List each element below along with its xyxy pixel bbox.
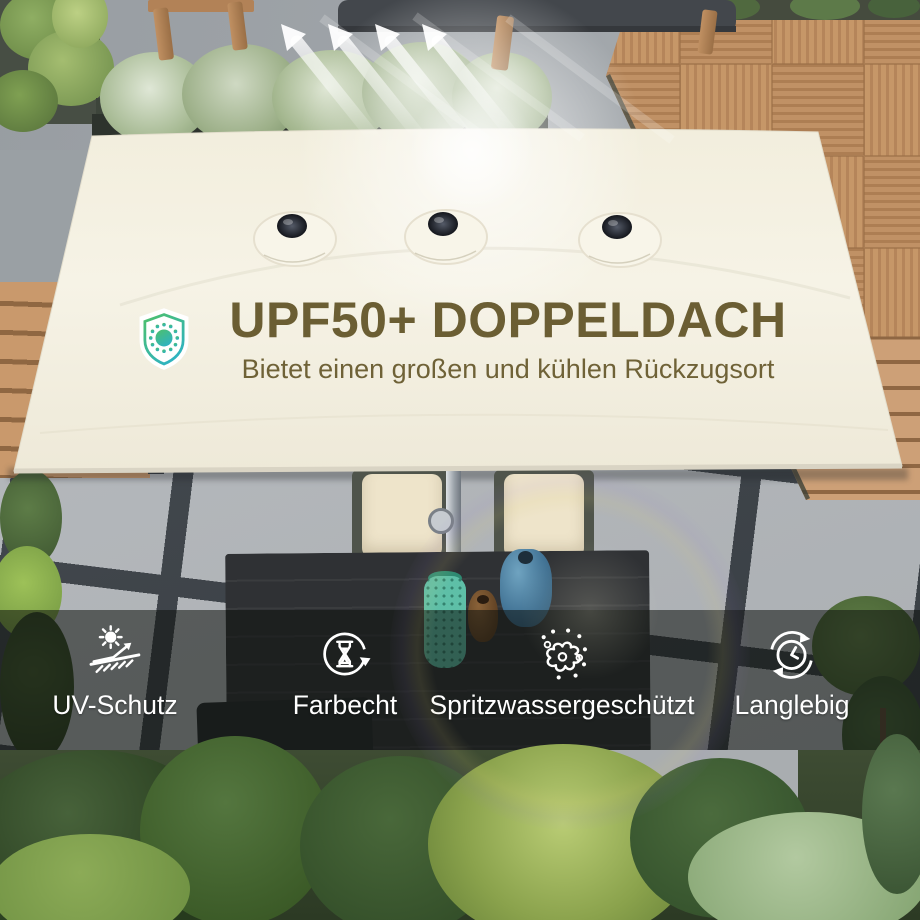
- heat-escape-arrows: [252, 12, 722, 144]
- canopy-vent-button: [254, 212, 336, 266]
- clock-longevity-icon: [762, 624, 822, 684]
- hero-subtitle: Bietet einen großen und kühlen Rückzugso…: [222, 354, 794, 385]
- umbrella-crank-handle: [428, 508, 454, 534]
- feature-label: UV-Schutz: [52, 690, 177, 721]
- water-splash-icon: [532, 624, 592, 684]
- garden-foreground: [0, 750, 920, 920]
- feature-label: Spritzwassergeschützt: [429, 690, 694, 721]
- feature-langlebig: Langlebig: [735, 624, 850, 721]
- feature-label: Langlebig: [735, 690, 850, 721]
- canopy-vent-button: [579, 213, 661, 267]
- sun-shield-icon: [130, 305, 198, 373]
- hero-block: UPF50+ DOPPELDACH Bietet einen großen un…: [130, 294, 794, 385]
- feature-band: UV-Schutz Farbecht: [0, 610, 920, 753]
- hourglass-refresh-icon: [315, 624, 375, 684]
- hero-title: UPF50+ DOPPELDACH: [222, 294, 794, 347]
- bottle-cap: [518, 551, 533, 564]
- feature-spritzwassergeschuetzt: Spritzwassergeschützt: [429, 624, 694, 721]
- feature-label: Farbecht: [293, 690, 398, 721]
- brown-vase-mouth: [477, 595, 489, 604]
- chair-cushion: [504, 474, 584, 558]
- uv-reflection-icon: [85, 624, 145, 684]
- product-marketing-image: UPF50+ DOPPELDACH Bietet einen großen un…: [0, 0, 920, 920]
- feature-uv-schutz: UV-Schutz: [52, 624, 177, 721]
- canopy-vent-button: [405, 210, 487, 264]
- feature-farbecht: Farbecht: [293, 624, 398, 721]
